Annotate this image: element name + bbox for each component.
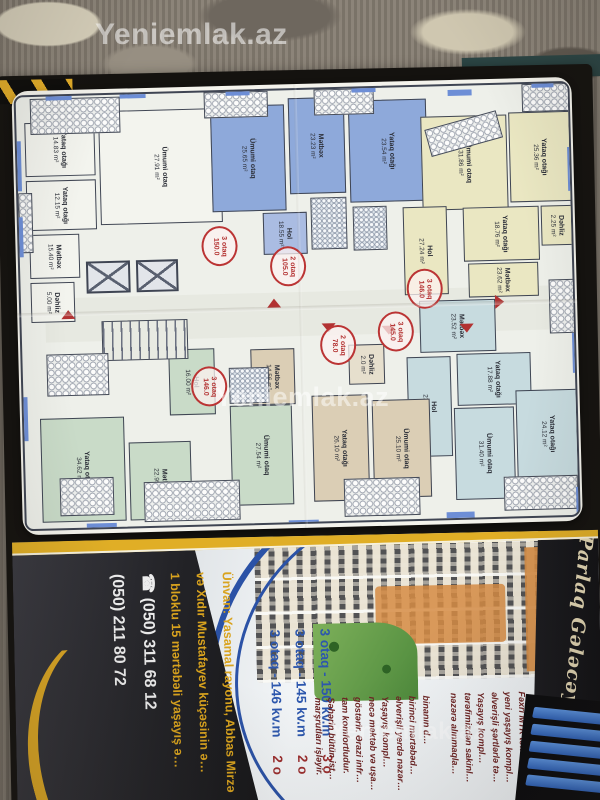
phone-number: (050) 211 80 72 (102, 574, 137, 800)
room: Dəhliz2.25 m² (541, 205, 574, 246)
watermark: Yeniemlak.az (330, 718, 485, 746)
room-name: Mətbəx (54, 243, 62, 269)
room-label: Mətbəx23.62 m² (496, 267, 511, 293)
room-name: Yataq otağı (493, 360, 501, 398)
room-label: Hol27.24 m² (418, 238, 433, 264)
window-marker (17, 217, 24, 257)
stamp-text: 2 otaq78.0 (330, 335, 346, 356)
room-label: Yataq otağı23.54 m² (380, 132, 395, 170)
room-name: Dəhliz (366, 354, 374, 375)
room: Yataq otağı18.76 m² (463, 206, 540, 262)
room: Ümumi otaq25.65 m² (210, 104, 287, 212)
window-marker (576, 487, 581, 517)
room-name: Yataq otağı (340, 429, 348, 467)
room-label: Yataq otağı12.15 m² (54, 186, 69, 224)
room-area: 5.00 m² (45, 291, 53, 313)
room-name: Hol (425, 238, 433, 264)
room-label: Yataq otağı14.83 m² (52, 130, 67, 168)
room-area: 2.0 m² (359, 354, 367, 375)
window-marker (567, 147, 574, 191)
balcony (344, 477, 421, 517)
window-marker (21, 397, 28, 441)
balcony (549, 279, 578, 334)
brochure: Yataq otağı14.83 m²Yataq otağı12.15 m²Üm… (0, 64, 600, 800)
room-label: Dəhliz2.0 m² (359, 354, 374, 375)
window-marker (87, 523, 117, 530)
stamp-area: 105.0 (280, 256, 288, 277)
room-label: Ümumi otaq31.40 m² (477, 433, 493, 474)
stamp-area: 78.0 (330, 335, 338, 356)
bathroom-tiled (353, 206, 388, 251)
ad-panel: 3 otaq - 150 kv.m3 o3 otaq - 145 kv.m2 o… (12, 530, 600, 800)
stamp-area: 146.0 (417, 278, 425, 299)
floor-plan-page: Yataq otağı14.83 m²Yataq otağı12.15 m²Üm… (11, 77, 582, 536)
stamp-type: 2 otaq (288, 256, 296, 277)
room-label: Yataq otağı17.88 m² (486, 360, 501, 398)
balcony (46, 353, 109, 397)
stamp-area: 150.0 (212, 236, 220, 257)
stamp-type: 3 otaq (219, 236, 227, 257)
window-marker (46, 94, 72, 101)
stamp-area: 146.0 (201, 376, 209, 397)
direction-arrow (460, 323, 474, 332)
address-line: 1 bloklu 15 mərtəbəli yaşayış ə… (162, 572, 193, 800)
room: Yataq otağı25.36 m² (508, 111, 572, 203)
window-marker (15, 141, 22, 191)
watermark: Yeniemlak.az (215, 382, 389, 413)
room-name: Ümumi otaq (160, 146, 169, 187)
elevator-shaft (86, 260, 131, 293)
room-name: Ümumi otaq (247, 138, 256, 179)
watermark: Yeniemlak.az (95, 18, 288, 52)
room-name: Yataq otağı (387, 132, 395, 170)
window-marker (447, 511, 475, 518)
stamp-type: 3 otaq (396, 321, 404, 342)
window-marker (225, 89, 249, 96)
room-name: Ümumi otaq (261, 435, 270, 476)
photo-scene: Yataq otağı14.83 m²Yataq otağı12.15 m²Üm… (0, 0, 600, 800)
balcony (504, 475, 579, 511)
room-label: Hol18.55 m² (278, 220, 293, 246)
room: Yataq otağı24.12 m² (515, 389, 580, 479)
apartment-stamp: 3 otaq145.0 (377, 311, 414, 352)
room-name: Yataq otağı (61, 186, 69, 224)
room: Mətbəx23.62 m² (468, 262, 539, 298)
room-name: Hol (285, 220, 293, 246)
room-label: Mətbəx23.23 m² (309, 132, 324, 158)
window-marker (448, 89, 472, 96)
room-area: 18.55 m² (278, 221, 286, 247)
room-label: Yataq otağı24.12 m² (541, 415, 556, 453)
balcony (144, 480, 241, 522)
room-label: Yataq otağı25.36 m² (533, 138, 548, 176)
room-name: Mətbəx (503, 267, 511, 293)
window-marker (119, 92, 145, 99)
stamp-text: 3 otaq146.0 (417, 278, 433, 299)
stamp-text: 2 otaq105.0 (280, 256, 296, 277)
phone-number: ☎ (050) 311 68 12 (132, 573, 167, 800)
room-label: Dəhliz2.25 m² (550, 214, 565, 236)
window-marker (531, 81, 553, 88)
room-label: Mətbəx15.40 m² (47, 243, 62, 269)
staircase (101, 319, 188, 361)
room-name: Yataq otağı (540, 138, 548, 176)
contact-block: Ünvan: Yasamal rayonu, Abbas Mirzəvə Xıd… (102, 571, 245, 800)
room-label: Ümumi otaq25.10 m² (394, 428, 410, 469)
window-marker (351, 86, 375, 93)
room-label: Ümumi otaq25.65 m² (240, 138, 256, 179)
room-name: Ümumi otaq (401, 428, 410, 469)
room-name: Dəhliz (52, 291, 60, 313)
listing-tail: 2 o (270, 755, 285, 775)
room-label: Ümumi otaq27.91 m² (153, 146, 169, 187)
elevator-shaft (136, 259, 179, 292)
stamp-text: 3 otaq150.0 (212, 236, 228, 257)
room-area: 27.24 m² (418, 238, 426, 264)
bathroom-tiled (310, 197, 347, 250)
room-name: Ümumi otaq (464, 142, 473, 183)
room-name: Dəhliz (557, 214, 565, 236)
room-label: Ümumi otaq27.54 m² (254, 435, 270, 476)
room: Yataq otağı12.15 m² (26, 179, 97, 231)
room-name: Hol (429, 394, 437, 420)
window-marker (572, 333, 579, 373)
room-name: Yataq otağı (59, 130, 67, 168)
room-label: Dəhliz5.00 m² (45, 291, 60, 313)
listing-tail: 2 o (295, 755, 310, 775)
room-name: Yataq otağı (501, 215, 509, 253)
room: Mətbəx15.40 m² (29, 234, 80, 279)
room-name: Yataq otağı (548, 415, 556, 453)
address-line: və Xıdır Mustafayev küçəsinin ə… (188, 572, 219, 800)
room-name: Ümumi otaq (484, 433, 493, 474)
room-area: 2.25 m² (550, 214, 558, 236)
stamp-area: 145.0 (388, 321, 396, 342)
description-paragraph-left: binanın d…birinci mərtəbəd…əlverişli yer… (311, 695, 437, 800)
apartment-stamp: 3 otaq150.0 (201, 226, 238, 267)
stamp-text: 3 otaq145.0 (388, 321, 404, 342)
room-name: Mətbəx (316, 132, 324, 158)
room-label: Yataq otağı18.76 m² (494, 215, 509, 253)
developer-logo (514, 694, 600, 800)
balcony (30, 97, 121, 135)
room-label: Yataq otağı26.10 m² (333, 429, 348, 467)
balcony (60, 477, 115, 516)
address-line: Ünvan: Yasamal rayonu, Abbas Mirzə (214, 571, 245, 800)
stamp-type: 3 otaq (424, 278, 432, 299)
stamp-type: 2 otaq (338, 335, 346, 356)
